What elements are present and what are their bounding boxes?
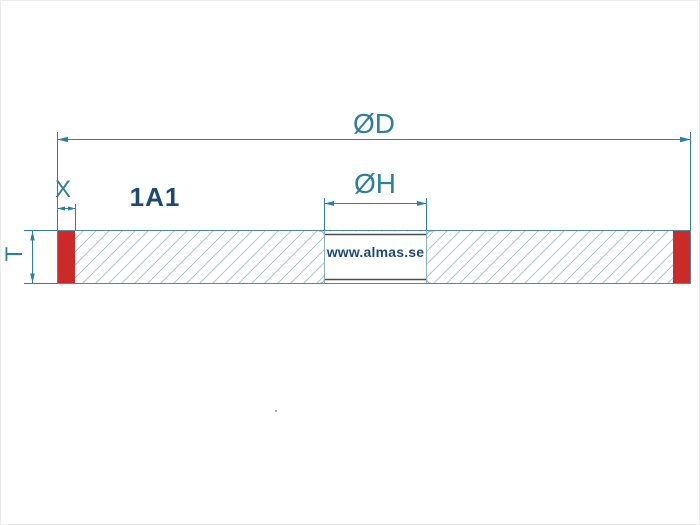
t-arrow-up-icon: [30, 231, 35, 241]
oh-arrow-right-icon: [417, 201, 427, 206]
wheel-cross-section-drawing: [1, 1, 700, 525]
oh-arrow-left-icon: [325, 201, 335, 206]
hole-diameter-dimension: [325, 198, 427, 231]
outer-diameter-label: ØD: [334, 110, 414, 138]
x-arrow-left-icon: [58, 206, 66, 210]
abrasive-layer-right: [673, 231, 690, 283]
abrasive-layer-left: [58, 231, 75, 283]
abrasive-width-label: X: [43, 178, 83, 202]
website-label: www.almas.se: [324, 245, 427, 259]
t-arrow-down-icon: [30, 274, 35, 284]
x-arrow-right-icon: [68, 206, 76, 210]
thickness-label: T: [3, 242, 27, 266]
hole-diameter-label: ØH: [335, 170, 415, 198]
wheel-type-label: 1A1: [119, 184, 191, 210]
od-arrow-right-icon: [680, 137, 691, 142]
artifact-dot: [275, 410, 277, 412]
drawing-canvas: ØD ØH X T 1A1 www.almas.se: [0, 0, 700, 525]
abrasive-width-dimension: [58, 204, 76, 230]
od-arrow-left-icon: [58, 137, 69, 142]
thickness-dimension: [24, 231, 57, 284]
